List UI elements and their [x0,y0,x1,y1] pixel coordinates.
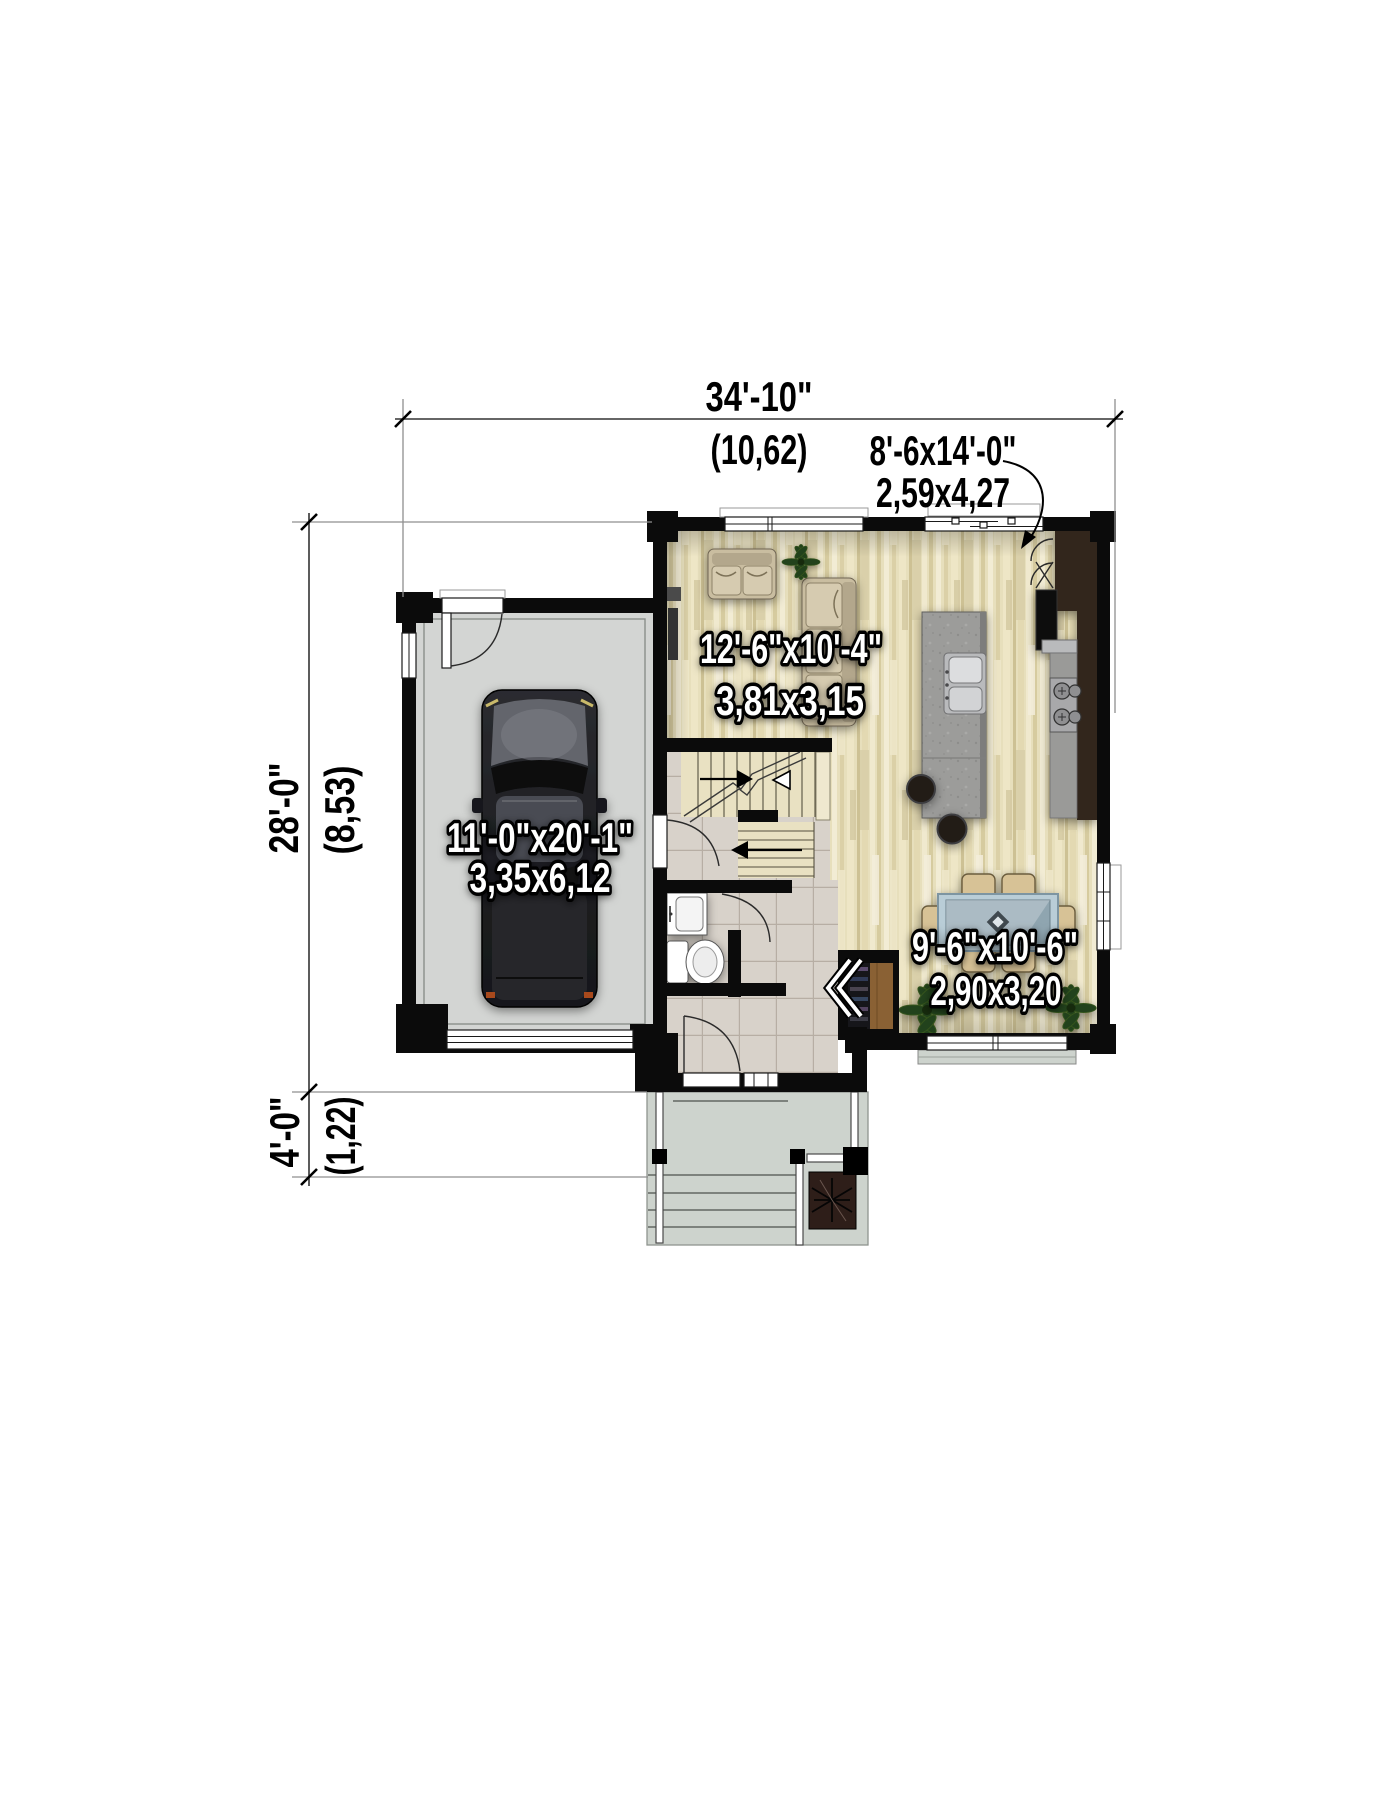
living-room-size-metric: 3,81x3,15 [716,677,864,724]
overall-depth-metric: (8,53) [316,766,363,855]
porch-post [790,1149,805,1164]
stove-icon [1050,678,1081,732]
dining-window [927,1036,1067,1050]
overall-width-imperial: 34'-10" [706,373,813,420]
floor-plan-page: 34'-10" (10,62) 8'-6x14'-0" 2,59x4,27 28… [0,0,1391,1800]
dining-room-size-imperial: 9'-6"x10'-6" [912,923,1078,970]
bathroom-sink-icon [667,893,707,935]
wall-bathroom-bottom [660,983,786,996]
patio-size-metric: 2,59x4,27 [876,469,1010,516]
patio-size-imperial: 8'-6x14'-0" [870,427,1017,474]
dining-stoop [918,1050,1076,1064]
bar-stool-icon [938,815,967,844]
garage-size-metric: 3,35x6,12 [470,854,611,901]
tv-console-icon [668,608,678,660]
closet-shelf [870,963,893,1029]
wall-stair [660,738,832,752]
porch-railing [851,1092,858,1150]
living-room-size-imperial: 12'-6"x10'-4" [700,625,882,672]
toilet-icon [667,940,724,984]
overall-width-metric: (10,62) [711,426,808,473]
wall-bathroom-top [660,880,792,893]
loveseat-icon [708,549,776,599]
porch-depth-imperial: 4'-0" [261,1097,308,1168]
garage-side-window [402,633,416,678]
floor-plan-svg: 34'-10" (10,62) 8'-6x14'-0" 2,59x4,27 28… [0,0,1391,1800]
garage-overhead-door [447,1030,633,1049]
entry-closet [828,950,899,1040]
island-sink-icon [944,653,986,714]
porch-railing [807,1154,845,1162]
living-window [725,517,863,531]
overall-depth-imperial: 28'-0" [260,763,307,854]
porch-railing [656,1092,663,1243]
porch-railing [796,1162,803,1245]
kitchen-window [1097,863,1110,950]
dining-room-size-metric: 2,90x3,20 [931,967,1062,1014]
wall-pilaster [667,587,681,601]
porch-depth-metric: (1,22) [317,1097,364,1176]
porch-post [652,1149,667,1164]
bar-stool-icon [907,775,935,803]
patio-door [925,517,1043,531]
porch-post [843,1147,868,1175]
front-porch [647,1092,868,1245]
wall-right [1097,517,1110,1050]
